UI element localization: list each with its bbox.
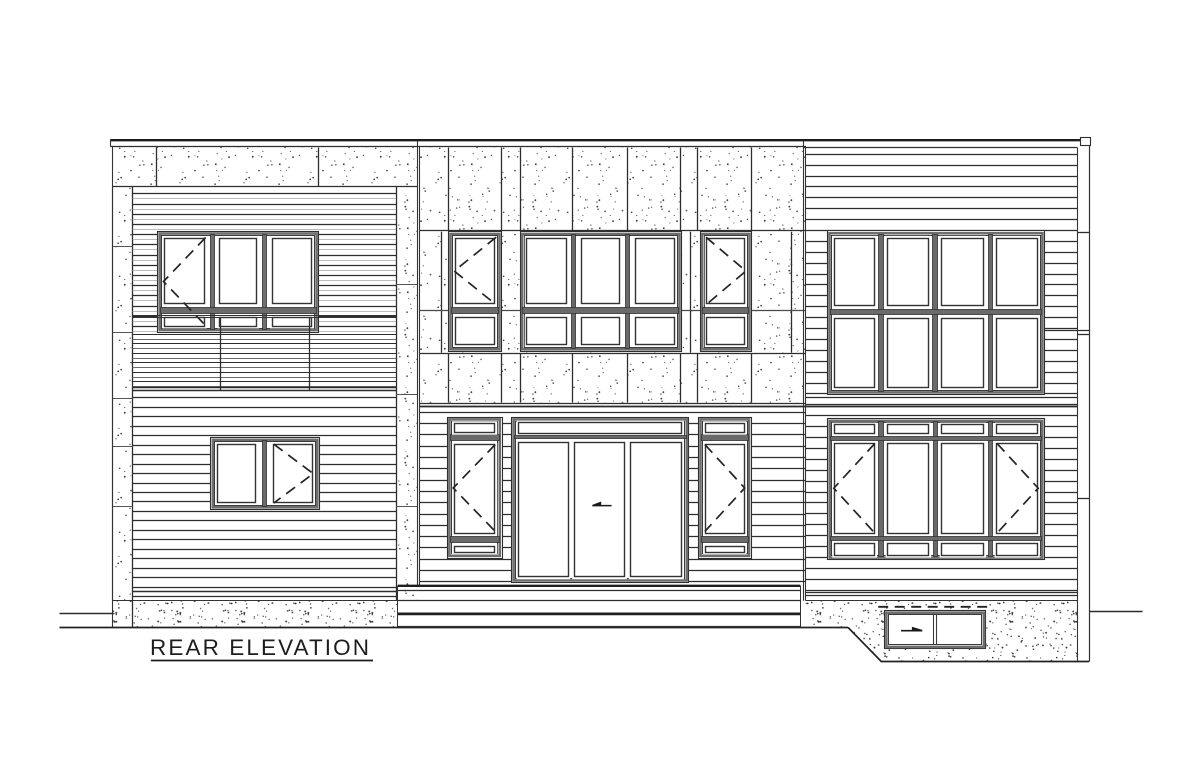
svg-text:REAR ELEVATION: REAR ELEVATION <box>150 635 371 660</box>
